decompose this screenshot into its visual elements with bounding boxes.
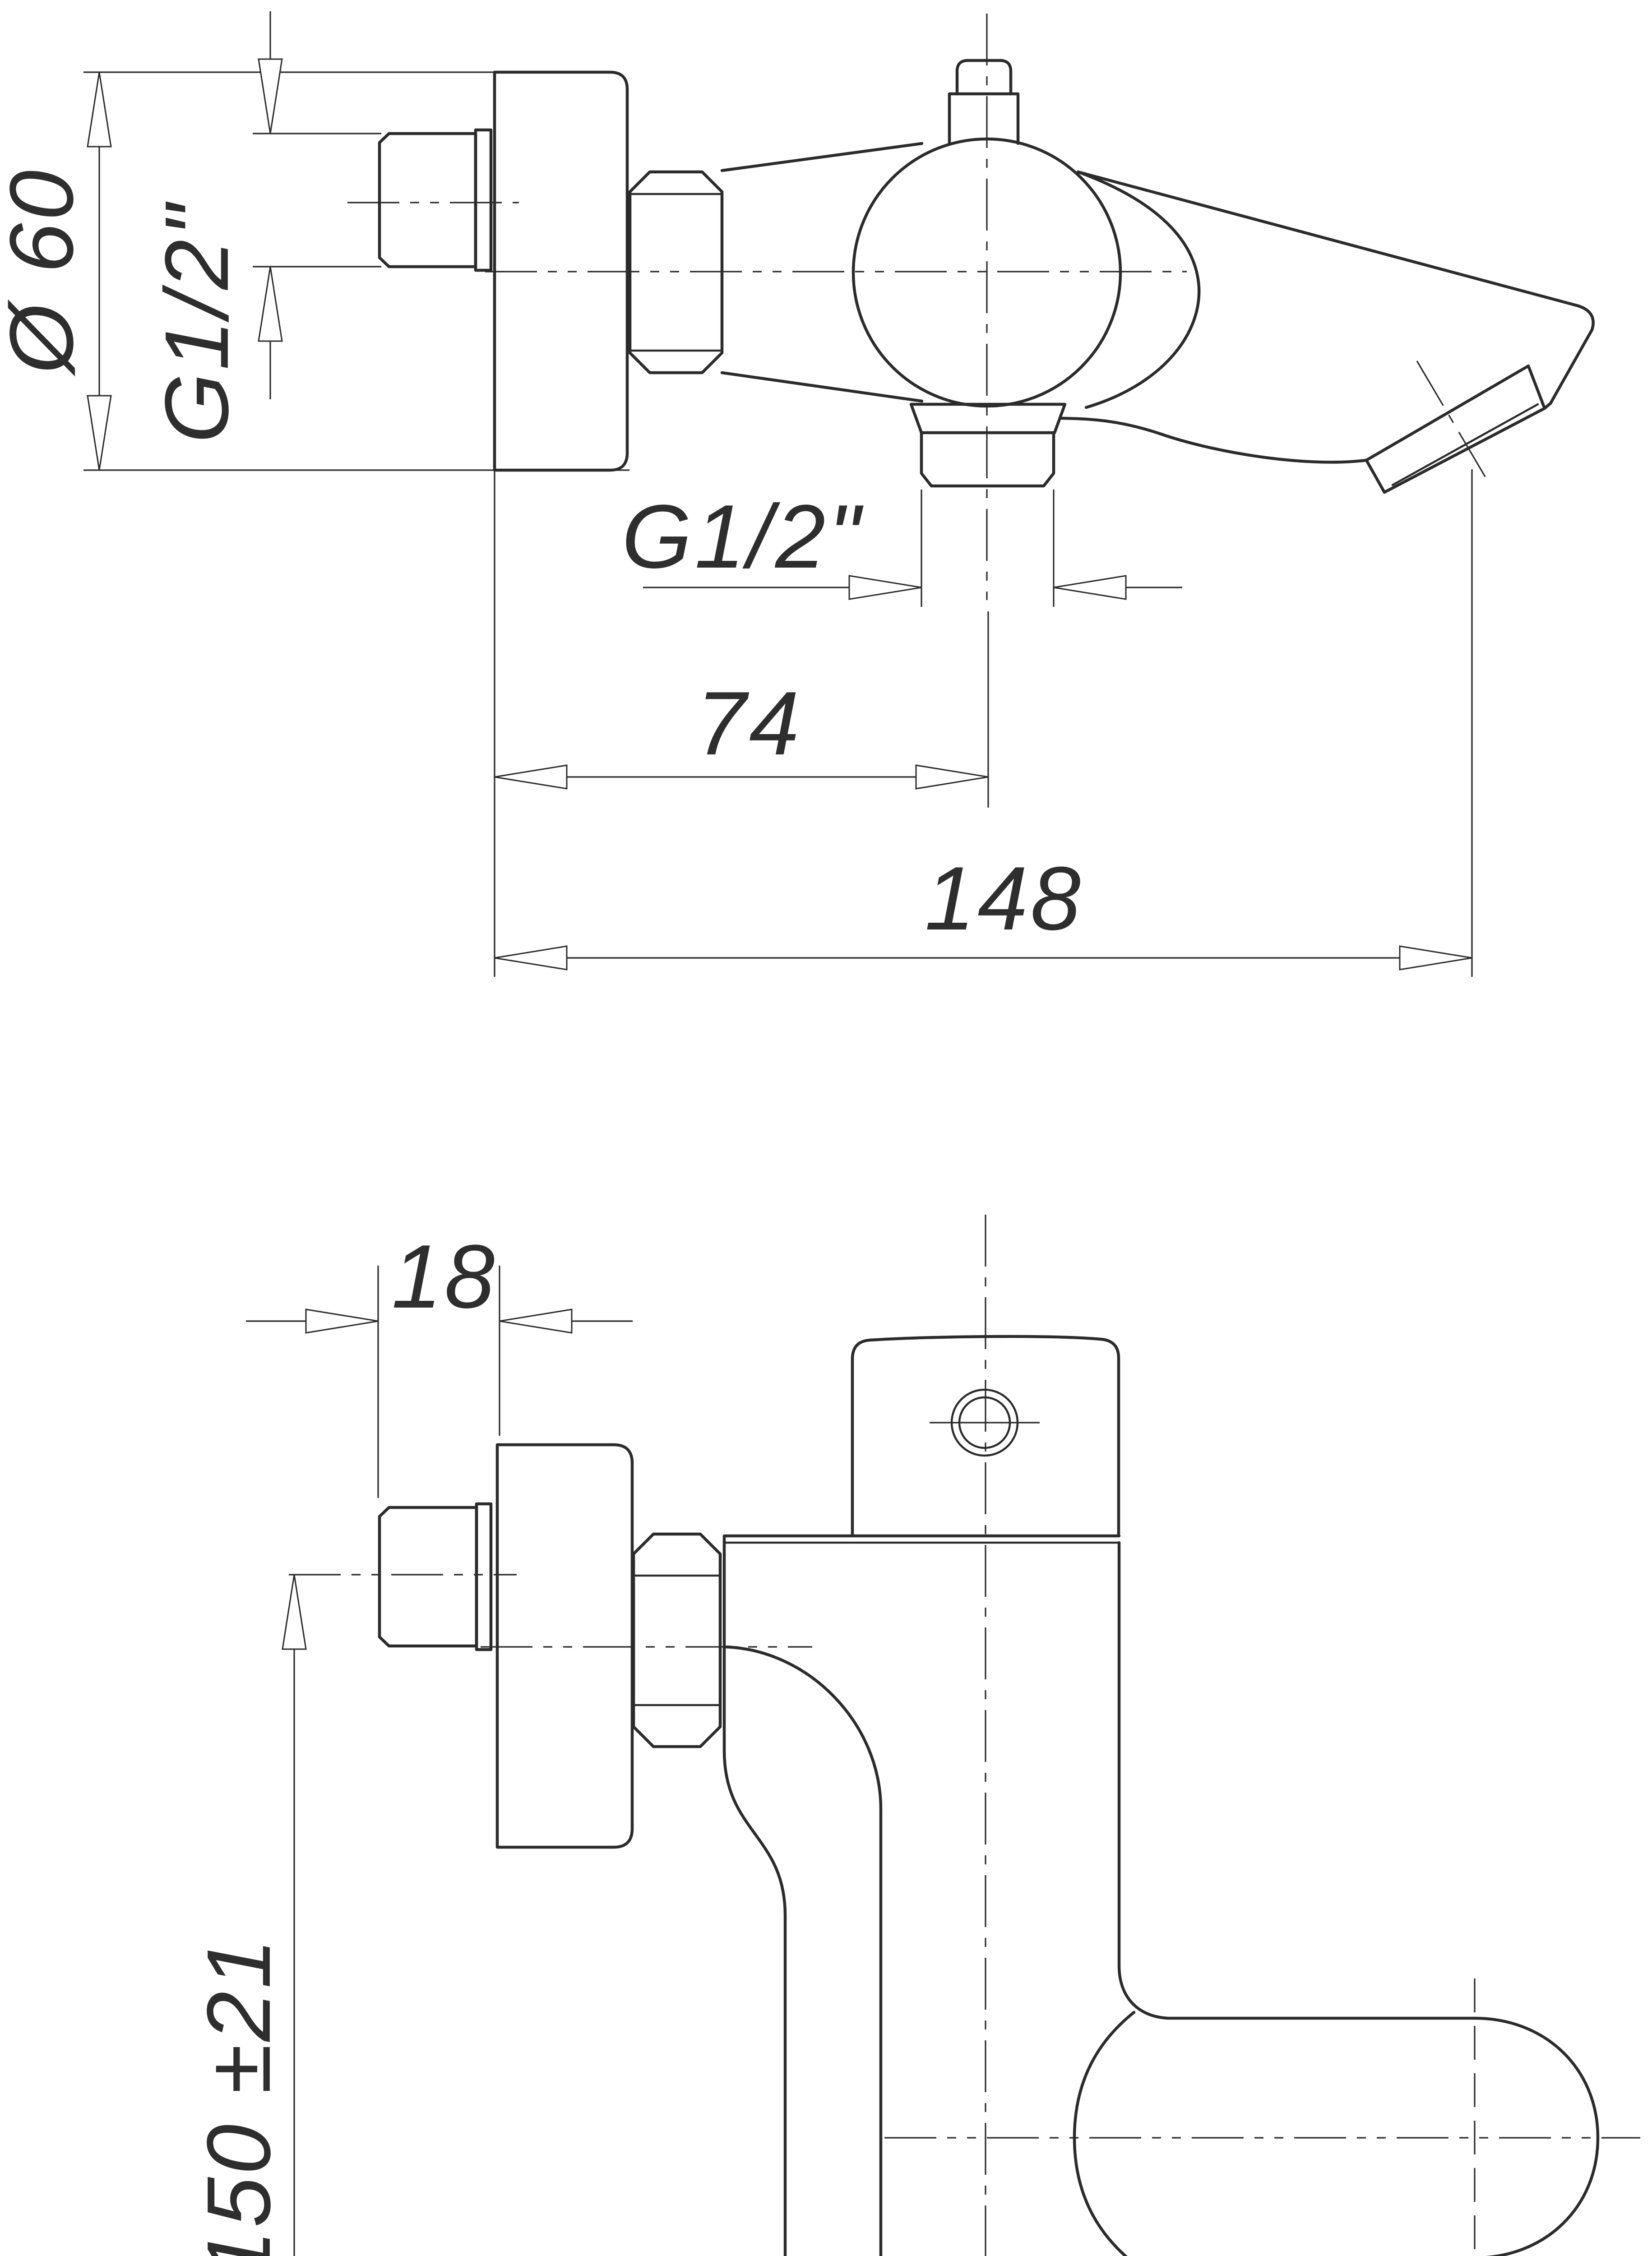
dim-inlet-thread: G1/2" bbox=[147, 11, 381, 443]
body-inner-contour bbox=[724, 1647, 881, 2256]
dim-label-150: 150 ±21 bbox=[189, 1936, 289, 2256]
arrowhead-right bbox=[916, 765, 988, 789]
arrowhead-left bbox=[500, 1309, 572, 1333]
dim-outlet-thread: G1/2" bbox=[622, 486, 1182, 607]
technical-drawing-canvas: Ø 60 G1/2" bbox=[0, 0, 1652, 2256]
arrowhead-up bbox=[282, 1575, 306, 1649]
side-view: Ø 60 G1/2" bbox=[0, 11, 1593, 977]
dim-150: 150 ±21 bbox=[189, 1575, 306, 2256]
drawing-sheet: Ø 60 G1/2" bbox=[0, 0, 1652, 2256]
front-view: 18 150 ±21 bbox=[189, 1215, 1640, 2256]
arrowhead-right bbox=[306, 1309, 378, 1333]
dim-label-18: 18 bbox=[392, 1226, 497, 1327]
dim-74: 74 bbox=[495, 611, 988, 808]
body-outline bbox=[724, 1536, 1640, 2256]
spout bbox=[1061, 172, 1593, 492]
dim-label-diameter: Ø 60 bbox=[0, 167, 92, 377]
arrowhead-down bbox=[88, 396, 111, 470]
arrowhead-left bbox=[1054, 576, 1126, 599]
arrowhead-left bbox=[495, 765, 567, 789]
arrowhead-up bbox=[259, 267, 282, 341]
dim-label-outlet-thread: G1/2" bbox=[622, 486, 864, 587]
dim-label-148: 148 bbox=[925, 848, 1083, 949]
arrowhead-left bbox=[495, 946, 567, 970]
aerator-axis-centerline bbox=[1417, 361, 1488, 482]
arrowhead-right bbox=[1400, 946, 1472, 970]
dim-label-74: 74 bbox=[696, 673, 802, 774]
aerator-inner-line bbox=[1393, 404, 1538, 485]
arrowhead-down bbox=[259, 59, 282, 134]
diverter-knob bbox=[949, 60, 1018, 143]
outlet-pipe bbox=[911, 404, 1065, 486]
arrowhead-up bbox=[88, 72, 111, 147]
dim-18: 18 bbox=[246, 1226, 633, 1498]
spout-shoulder-curve bbox=[1078, 172, 1199, 407]
knob-collar-arc bbox=[1074, 2012, 1134, 2256]
dim-label-inlet-thread: G1/2" bbox=[147, 201, 247, 444]
